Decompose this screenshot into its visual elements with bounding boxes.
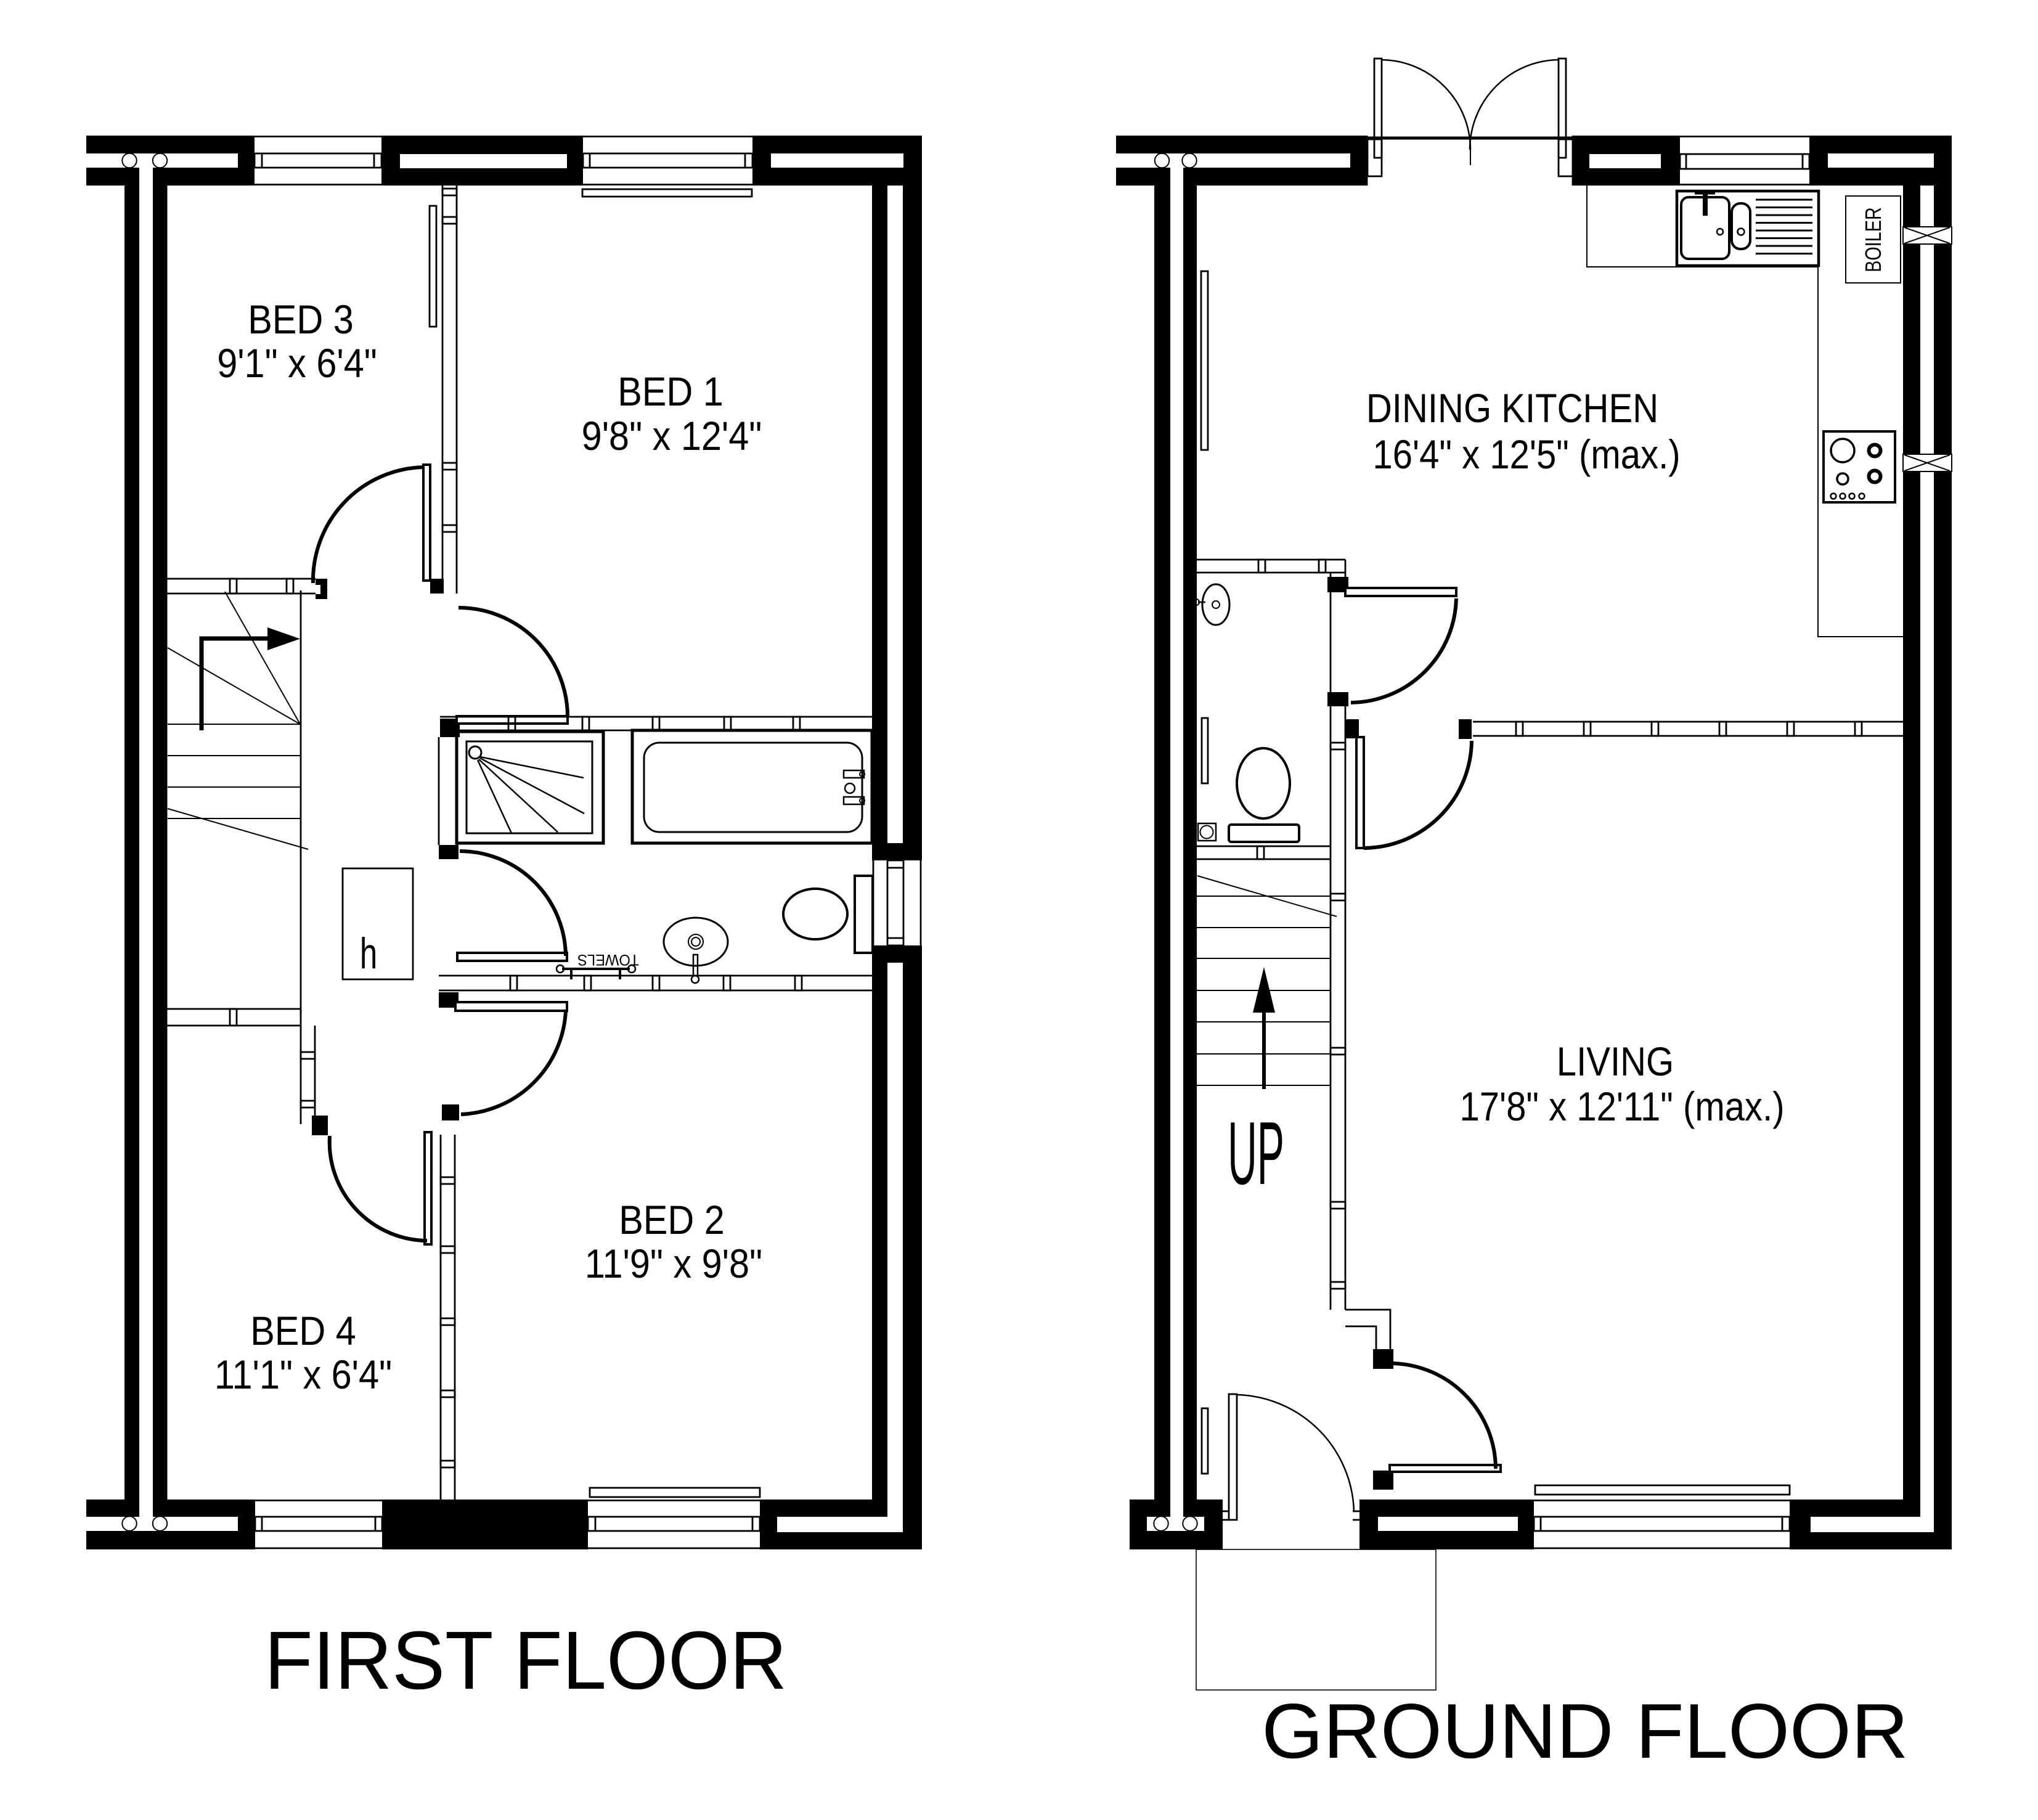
svg-text:GROUND FLOOR: GROUND FLOOR [1262,1687,1908,1774]
svg-text:9'1" x 6'4": 9'1" x 6'4" [217,341,377,386]
svg-text:11'1" x 6'4": 11'1" x 6'4" [214,1352,392,1398]
svg-text:11'9" x 9'8": 11'9" x 9'8" [585,1241,762,1287]
svg-text:BOILER: BOILER [1861,207,1886,272]
svg-text:BED 2: BED 2 [619,1198,725,1243]
svg-text:BED 3: BED 3 [248,297,354,343]
svg-text:BED 4: BED 4 [250,1308,356,1354]
svg-text:BED 1: BED 1 [618,369,723,415]
svg-text:FIRST FLOOR: FIRST FLOOR [264,1614,787,1707]
svg-text:9'8" x 12'4": 9'8" x 12'4" [582,414,762,459]
svg-text:17'8" x 12'11" (max.): 17'8" x 12'11" (max.) [1459,1085,1784,1130]
svg-text:h: h [360,929,377,978]
svg-text:LIVING: LIVING [1557,1040,1674,1085]
svg-text:UP: UP [1228,1103,1284,1203]
svg-text:DINING KITCHEN: DINING KITCHEN [1366,386,1658,431]
svg-text:16'4" x 12'5" (max.): 16'4" x 12'5" (max.) [1372,433,1680,478]
